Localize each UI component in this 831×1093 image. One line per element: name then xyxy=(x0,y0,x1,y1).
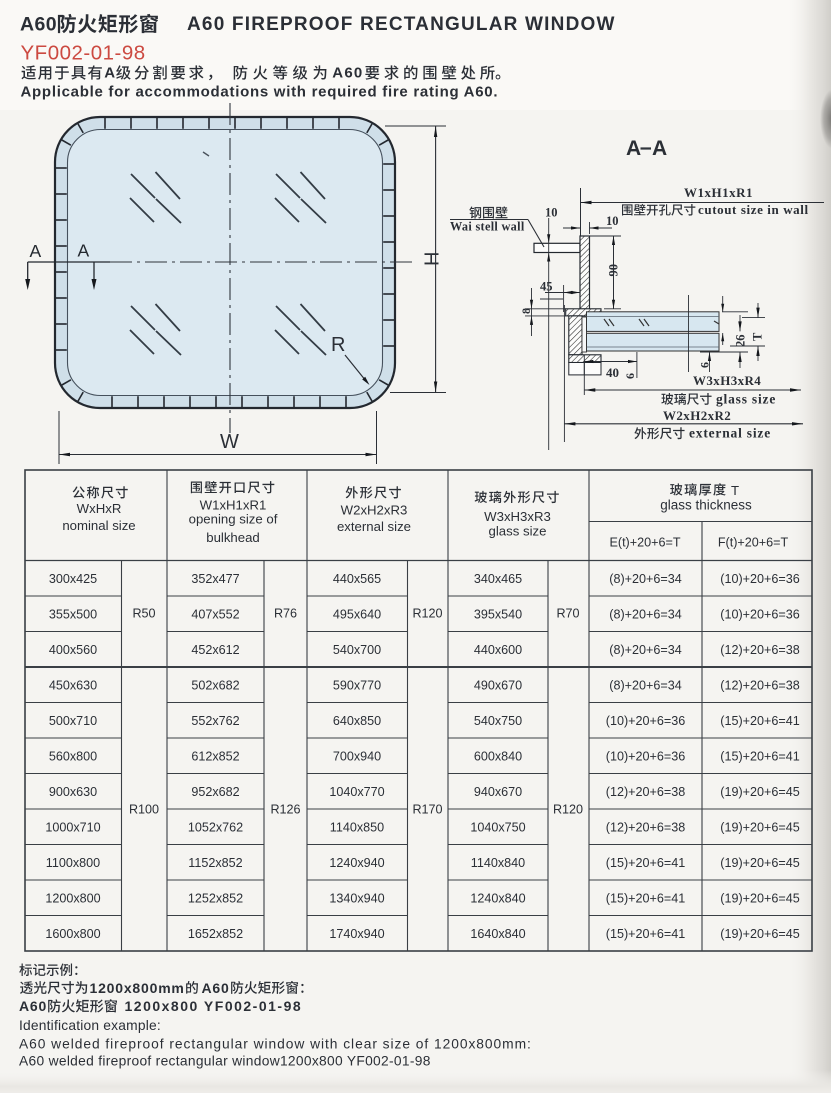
svg-text:600x840: 600x840 xyxy=(474,749,522,763)
svg-text:(19)+20+6=45: (19)+20+6=45 xyxy=(720,927,799,941)
svg-text:external size: external size xyxy=(689,426,771,441)
svg-text:1240x840: 1240x840 xyxy=(470,891,525,905)
svg-text:A60: A60 xyxy=(332,65,363,82)
svg-text:W: W xyxy=(220,431,239,453)
svg-text:1152x852: 1152x852 xyxy=(188,856,242,870)
svg-text:90: 90 xyxy=(607,264,621,277)
svg-text:(10)+20+6=36: (10)+20+6=36 xyxy=(720,607,799,621)
svg-text:R170: R170 xyxy=(412,803,442,817)
svg-text:Applicable for accommodations: Applicable for accommodations with requi… xyxy=(21,84,499,101)
svg-text:WxHxR: WxHxR xyxy=(77,501,122,516)
svg-text:YF002-01-98: YF002-01-98 xyxy=(21,42,146,65)
svg-text:8: 8 xyxy=(519,308,533,314)
svg-text:cutout size in wall: cutout size in wall xyxy=(698,202,809,217)
svg-text:940x670: 940x670 xyxy=(474,785,522,799)
svg-text:glass thickness: glass thickness xyxy=(660,498,752,513)
svg-text:1140x840: 1140x840 xyxy=(471,856,525,870)
svg-text:1652x852: 1652x852 xyxy=(188,927,243,941)
svg-text:1340x940: 1340x940 xyxy=(329,891,384,905)
svg-text:1200x800: 1200x800 xyxy=(45,891,100,905)
svg-text:glass size: glass size xyxy=(489,524,547,539)
svg-text:10: 10 xyxy=(545,206,558,220)
svg-text:1052x762: 1052x762 xyxy=(188,820,243,834)
svg-text:A60: A60 xyxy=(202,980,230,996)
svg-text:1140x850: 1140x850 xyxy=(330,820,384,834)
svg-text:1040x750: 1040x750 xyxy=(470,820,525,834)
svg-text:R70: R70 xyxy=(556,607,579,621)
svg-text:W3xH3xR3: W3xH3xR3 xyxy=(484,509,551,524)
svg-text:640x850: 640x850 xyxy=(333,714,381,728)
svg-text:560x800: 560x800 xyxy=(49,749,97,763)
svg-text:(8)+20+6=34: (8)+20+6=34 xyxy=(609,607,681,621)
svg-text:W2xH2xR3: W2xH2xR3 xyxy=(341,503,408,518)
svg-text:400x560: 400x560 xyxy=(49,643,97,657)
svg-text:(19)+20+6=45: (19)+20+6=45 xyxy=(720,785,799,799)
svg-text:952x682: 952x682 xyxy=(191,785,239,799)
svg-text:45: 45 xyxy=(540,280,553,294)
svg-text:355x500: 355x500 xyxy=(49,607,97,621)
svg-text:W2xH2xR2: W2xH2xR2 xyxy=(663,408,731,423)
svg-text:R126: R126 xyxy=(270,803,300,817)
svg-text:A: A xyxy=(30,241,42,261)
svg-text:1600x800: 1600x800 xyxy=(45,927,100,941)
svg-text:395x540: 395x540 xyxy=(474,607,522,621)
svg-text:26: 26 xyxy=(734,335,748,348)
svg-text:1640x840: 1640x840 xyxy=(470,927,525,941)
svg-text:F(t)+20+6=T: F(t)+20+6=T xyxy=(718,536,789,550)
svg-text:10: 10 xyxy=(606,214,619,228)
svg-text:Wai stell wall: Wai stell wall xyxy=(450,220,525,234)
svg-text:W1xH1xR1: W1xH1xR1 xyxy=(200,497,267,512)
svg-text:A: A xyxy=(78,241,90,261)
svg-text:(15)+20+6=41: (15)+20+6=41 xyxy=(606,927,685,941)
svg-text:T: T xyxy=(751,332,765,341)
svg-text:R120: R120 xyxy=(412,607,442,621)
svg-text:(12)+20+6=38: (12)+20+6=38 xyxy=(720,678,799,692)
svg-text:540x750: 540x750 xyxy=(474,714,522,728)
svg-text:(19)+20+6=45: (19)+20+6=45 xyxy=(720,856,799,870)
svg-text:(15)+20+6=41: (15)+20+6=41 xyxy=(720,749,799,763)
svg-text:490x670: 490x670 xyxy=(474,678,522,692)
svg-text:407x552: 407x552 xyxy=(191,607,239,621)
svg-text:(8)+20+6=34: (8)+20+6=34 xyxy=(609,643,681,657)
svg-text:glass size: glass size xyxy=(716,392,776,407)
svg-text:540x700: 540x700 xyxy=(333,643,381,657)
svg-text:502x682: 502x682 xyxy=(191,678,239,692)
svg-text:1740x940: 1740x940 xyxy=(329,927,384,941)
svg-text:(12)+20+6=38: (12)+20+6=38 xyxy=(720,643,799,657)
svg-text:A: A xyxy=(626,137,641,160)
svg-text:T: T xyxy=(731,483,739,498)
svg-text:(12)+20+6=38: (12)+20+6=38 xyxy=(606,785,685,799)
svg-text:A60: A60 xyxy=(20,14,57,36)
svg-text:495x640: 495x640 xyxy=(333,607,381,621)
svg-text:R: R xyxy=(331,334,345,356)
svg-text:1040x770: 1040x770 xyxy=(329,785,384,799)
svg-text:6: 6 xyxy=(623,373,637,379)
svg-text:(19)+20+6=45: (19)+20+6=45 xyxy=(720,891,799,905)
svg-text:1240x940: 1240x940 xyxy=(329,856,384,870)
svg-text:500x710: 500x710 xyxy=(49,714,97,728)
svg-text:(15)+20+6=41: (15)+20+6=41 xyxy=(606,856,685,870)
svg-text:450x630: 450x630 xyxy=(49,678,97,692)
svg-text:1252x852: 1252x852 xyxy=(188,891,243,905)
svg-text:1100x800: 1100x800 xyxy=(46,856,100,870)
svg-text:W3xH3xR4: W3xH3xR4 xyxy=(693,373,761,388)
svg-text:H: H xyxy=(422,252,444,266)
svg-text:590x770: 590x770 xyxy=(333,678,381,692)
svg-text:1000x710: 1000x710 xyxy=(45,820,100,834)
svg-text:opening size of: opening size of xyxy=(189,512,278,527)
svg-text:(10)+20+6=36: (10)+20+6=36 xyxy=(720,572,799,586)
svg-text:440x600: 440x600 xyxy=(474,643,522,657)
svg-text:A60: A60 xyxy=(19,998,47,1014)
svg-text:(8)+20+6=34: (8)+20+6=34 xyxy=(609,678,681,692)
svg-text:340x465: 340x465 xyxy=(474,572,522,586)
svg-text:(10)+20+6=36: (10)+20+6=36 xyxy=(606,749,685,763)
svg-text:(19)+20+6=45: (19)+20+6=45 xyxy=(720,820,799,834)
svg-text:R50: R50 xyxy=(132,607,155,621)
svg-text:(15)+20+6=41: (15)+20+6=41 xyxy=(606,891,685,905)
svg-text:452x612: 452x612 xyxy=(191,643,239,657)
svg-text:612x852: 612x852 xyxy=(191,749,239,763)
svg-text:W1xH1xR1: W1xH1xR1 xyxy=(684,185,753,200)
svg-text:A60 welded fireproof rectangul: A60 welded fireproof rectangular window1… xyxy=(19,1054,431,1069)
svg-text:A60 FIREPROOF RECTANGULAR WIND: A60 FIREPROOF RECTANGULAR WINDOW xyxy=(187,14,616,35)
svg-text:E(t)+20+6=T: E(t)+20+6=T xyxy=(609,536,680,550)
svg-text:700x940: 700x940 xyxy=(333,749,381,763)
svg-text:(8)+20+6=34: (8)+20+6=34 xyxy=(609,572,681,586)
svg-text:external size: external size xyxy=(337,519,411,534)
svg-text:40: 40 xyxy=(606,365,619,380)
svg-text:6: 6 xyxy=(698,362,712,368)
svg-text:R120: R120 xyxy=(553,803,583,817)
svg-text:A: A xyxy=(652,137,667,160)
svg-text:1200x800 YF002-01-98: 1200x800 YF002-01-98 xyxy=(125,998,303,1014)
svg-text:(12)+20+6=38: (12)+20+6=38 xyxy=(606,820,685,834)
svg-text:(10)+20+6=36: (10)+20+6=36 xyxy=(606,714,685,728)
svg-text:nominal size: nominal size xyxy=(62,518,135,533)
svg-text:A: A xyxy=(104,65,115,82)
svg-text:1200x800mm: 1200x800mm xyxy=(90,980,185,996)
svg-text:352x477: 352x477 xyxy=(191,572,239,586)
svg-text:552x762: 552x762 xyxy=(191,714,239,728)
svg-text:bulkhead: bulkhead xyxy=(206,530,260,545)
svg-text:R76: R76 xyxy=(274,607,297,621)
svg-text:R100: R100 xyxy=(129,803,159,817)
svg-text:900x630: 900x630 xyxy=(49,785,97,799)
svg-text:(15)+20+6=41: (15)+20+6=41 xyxy=(720,714,799,728)
svg-text:300x425: 300x425 xyxy=(49,572,97,586)
svg-text:A60 welded fireproof rectangul: A60 welded fireproof rectangular window … xyxy=(19,1037,532,1052)
svg-text:440x565: 440x565 xyxy=(333,572,381,586)
svg-text:Identification example:: Identification example: xyxy=(19,1018,161,1033)
